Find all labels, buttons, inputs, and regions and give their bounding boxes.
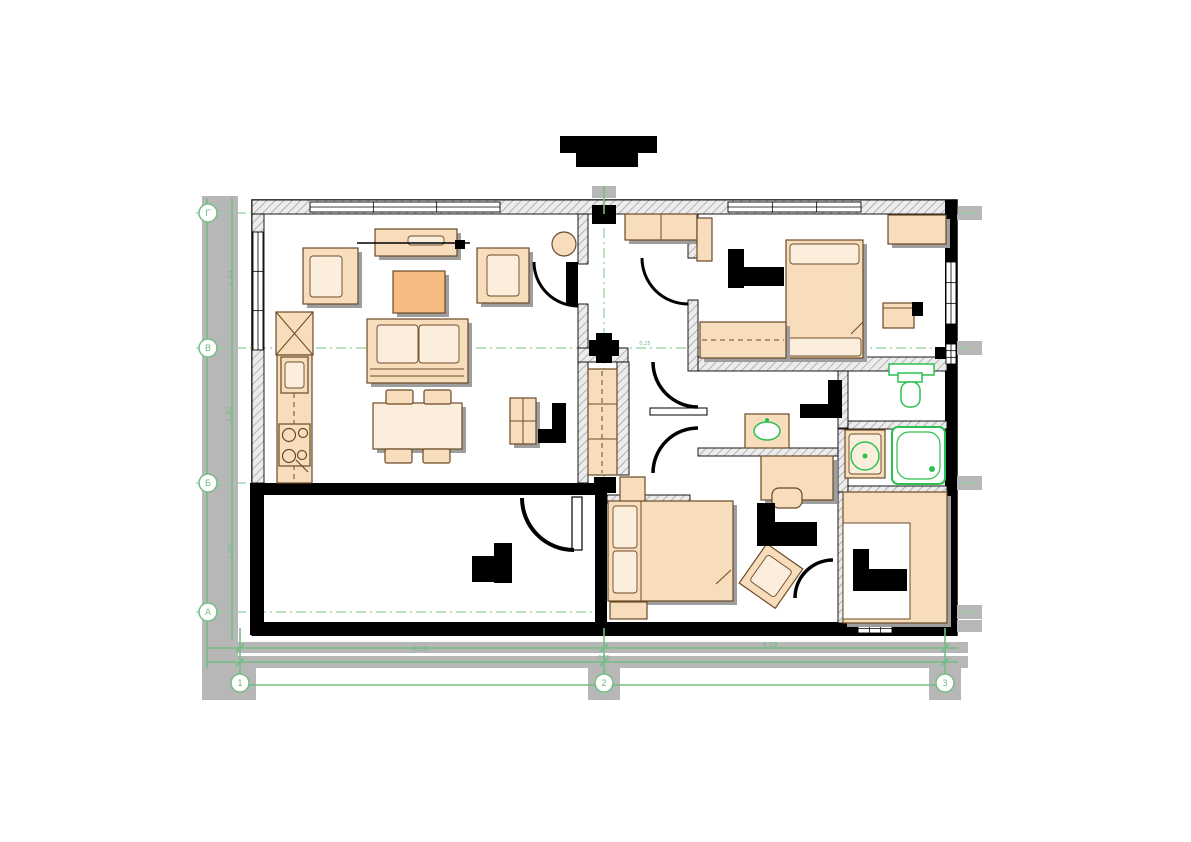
dining-chair-3: [385, 449, 412, 463]
grid-bubble-axis-1-label: 1: [237, 679, 243, 689]
grid-bubble-axis-2: 2: [595, 674, 613, 692]
dining-chair-1: [386, 390, 413, 404]
dining-table-body: [373, 403, 462, 449]
door-living-leaf: [566, 262, 578, 306]
door-living-leaf-part: [566, 262, 578, 306]
grid-bubble-axis-a-label: А: [205, 608, 212, 618]
grid-bubble-axis-a: А: [199, 603, 217, 621]
floor-plan-page: ГВБА1234.984.080.251.841.821.760.25: [0, 0, 1191, 842]
sideboard: [375, 229, 461, 260]
decor-block: [455, 240, 465, 249]
hall-cabinet: [510, 398, 540, 448]
bed-1: [786, 240, 867, 362]
wall-cabinet-side: [617, 362, 629, 475]
bench-2: [610, 602, 647, 619]
door-bedroom2-flag-part: [775, 522, 817, 546]
dim-text: 0.25: [639, 341, 650, 347]
dim-text: 1.76: [227, 544, 235, 560]
grid-bubble-axis-3: 3: [936, 674, 954, 692]
wardrobe-2: [888, 215, 950, 248]
bed-2-inner: [613, 551, 637, 593]
desk-chair: [772, 488, 802, 508]
door-storeroom-flag-part: [869, 569, 907, 591]
grid-bubble-axis-g: Г: [199, 204, 217, 222]
door-bedroom2-flag-part: [757, 503, 775, 546]
dim-text: 4.08: [762, 641, 778, 649]
window-left-living: [253, 232, 263, 350]
coffee-table-body: [393, 271, 445, 313]
grid-bubble-axis-v-label: В: [205, 344, 211, 354]
wall-corridor-bedroom2: [698, 448, 838, 456]
bed-1-inner: [790, 244, 859, 264]
terrace-door-leaf: [572, 497, 582, 550]
grid-bubble-axis-b-label: Б: [205, 479, 211, 489]
dining-chair-4-body: [423, 449, 450, 463]
sofa-inner: [419, 325, 459, 363]
dining-chair-3-body: [385, 449, 412, 463]
title-text-blob-part: [576, 153, 638, 167]
round-table: [552, 232, 576, 256]
grid-bubble-axis-b: Б: [199, 474, 217, 492]
window-top-bedroom1: [728, 202, 861, 212]
door-wc-flag-part: [800, 404, 828, 418]
kitchen-sink-inner: [285, 362, 304, 388]
armchair-2: [477, 248, 533, 307]
corridor-cabinet: [620, 477, 645, 503]
wall-bedroom1-west-lower: [688, 300, 698, 371]
decor-block-part: [455, 240, 465, 249]
armchair-1: [303, 248, 362, 308]
door-bedroom1-flag-part: [728, 249, 744, 288]
grid-bubble-axis-v: В: [199, 339, 217, 357]
hall-wardrobe: [588, 369, 617, 475]
door-dining-flag-part: [552, 403, 566, 443]
bench-1: [883, 303, 914, 328]
dining-chair-4: [423, 449, 450, 463]
floor-plan-drawing: ГВБА1234.984.080.251.841.821.760.25: [0, 0, 1191, 842]
dim-text: 1.84: [227, 270, 235, 286]
grid-bubble-axis-g-label: Г: [205, 209, 211, 219]
grid-bubble-axis-3-label: 3: [942, 679, 948, 689]
armchair-2-inner: [487, 255, 519, 296]
toilet-bowl: [901, 382, 920, 407]
sofa: [367, 319, 472, 387]
window-top-living: [310, 202, 500, 212]
wall-hall-west-upper: [578, 214, 588, 264]
shadow-block: [912, 302, 923, 316]
shower-drain: [929, 466, 935, 472]
terrace-door-flag-part: [494, 543, 512, 583]
tall-cabinet-1-body: [697, 218, 712, 261]
wall-terrace-east: [595, 483, 607, 635]
kitchen-flue-box: [276, 312, 313, 355]
dining-table: [373, 403, 466, 453]
shadow-block-part: [912, 302, 923, 316]
dining-chair-1-body: [386, 390, 413, 404]
vanity-tap: [765, 418, 769, 422]
terrace-door-flag-part: [472, 556, 496, 582]
sofa-inner: [377, 325, 418, 363]
corridor-cabinet-body: [620, 477, 645, 503]
wall-stub-right: [935, 347, 947, 359]
bench-2-body: [610, 602, 647, 619]
door-wc-flag-part: [828, 380, 842, 418]
door-dining-flag-part: [538, 429, 554, 443]
title-text-blob-part: [560, 136, 657, 153]
title-text-blob: [560, 136, 657, 167]
dining-chair-2-body: [424, 390, 451, 404]
door-storeroom-flag-part: [853, 549, 869, 591]
armchair-1-inner: [310, 256, 342, 297]
kitchen-sink: [281, 357, 308, 393]
column-bottom: [594, 477, 616, 493]
tall-cabinet-1: [697, 218, 712, 261]
bench-1-body: [883, 303, 914, 328]
bed-1-inner: [788, 338, 861, 356]
grid-bubble-axis-1: 1: [231, 674, 249, 692]
wall-thin-partition: [650, 408, 707, 415]
wardrobe-1: [625, 214, 701, 244]
door-bedroom1-flag-part: [744, 267, 784, 286]
window-right-small: [946, 344, 956, 364]
dim-text: 4.98: [412, 645, 428, 653]
column-bottom-part: [594, 477, 616, 493]
bed-2: [608, 501, 737, 605]
window-right-bedroom1: [946, 262, 956, 324]
desk-chair-body: [772, 488, 802, 508]
washer-dot: [863, 454, 868, 459]
dining-chair-2: [424, 390, 451, 404]
wall-terrace-left: [250, 483, 264, 635]
wardrobe-2-body: [888, 215, 946, 244]
dim-text: 0.25: [598, 655, 609, 661]
dim-text: 1.82: [225, 406, 233, 422]
column-center-part: [589, 340, 619, 356]
wall-living-south: [252, 483, 607, 495]
dresser-1: [700, 322, 790, 362]
coffee-table: [393, 271, 449, 317]
vanity-sink: [754, 422, 780, 440]
grid-bubble-axis-2-label: 2: [601, 679, 607, 689]
wall-hall-west-lower: [578, 304, 588, 483]
bed-2-inner: [613, 506, 637, 548]
toilet-tank: [898, 373, 922, 382]
